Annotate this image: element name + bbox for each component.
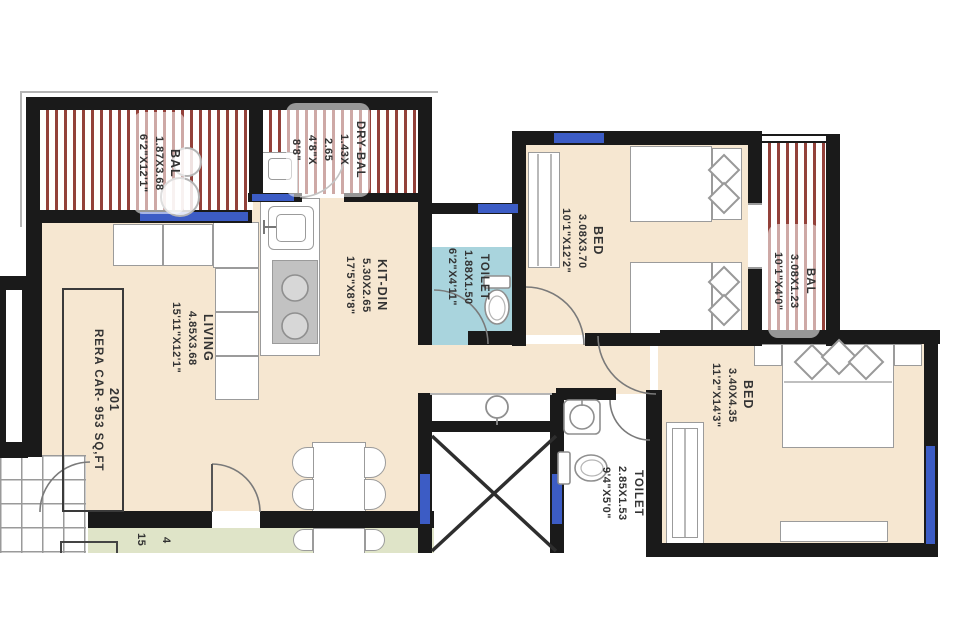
unit-area-box: 201 RERA CAR- 953 SQ,FT xyxy=(62,288,124,512)
room-dim-m: 1.87X3.68 xyxy=(151,114,167,212)
lift-lobby-line xyxy=(430,393,552,395)
room-name: TOILET xyxy=(476,216,492,338)
balcony-rail xyxy=(760,134,828,143)
room-dim-m: 2.85X1.53 xyxy=(614,438,630,548)
unit-number: 201 xyxy=(106,290,122,510)
room-dim-m: 1.43X xyxy=(336,105,352,195)
wall xyxy=(648,543,938,557)
outline xyxy=(20,91,438,93)
adjacent-area-box xyxy=(60,541,118,553)
wall xyxy=(550,393,564,553)
window xyxy=(926,446,935,544)
unit-area: RERA CAR- 953 SQ,FT xyxy=(90,290,106,510)
room-label-bed-top: BED 3.08X3.70 10'1"X12'2" xyxy=(558,182,606,300)
pillow-icon xyxy=(712,148,742,220)
wall xyxy=(26,210,42,457)
window xyxy=(478,204,518,213)
room-name: LIVING xyxy=(200,282,216,394)
room-name: BAL xyxy=(802,226,818,336)
adjacent-table xyxy=(313,528,365,553)
wall xyxy=(249,97,263,201)
lift-lobby-symbol xyxy=(486,396,508,418)
room-dim-m: 2.65 xyxy=(320,105,336,195)
adjacent-unit-label-fragment: 15 xyxy=(133,526,149,553)
wall xyxy=(260,511,434,528)
room-label-dry-balcony: DRY-BAL 1.43X 2.65 4'8"X 8'8" xyxy=(286,103,370,197)
wall xyxy=(556,388,616,400)
room-label-bed-master: BED 3.40X4.35 11'2"X14'3" xyxy=(708,345,756,445)
passage-floor xyxy=(420,344,650,394)
window xyxy=(252,194,294,201)
room-name: BED xyxy=(590,182,606,300)
window xyxy=(552,474,562,524)
lift-shaft xyxy=(432,436,556,551)
room-dim-m: 3.08X3.70 xyxy=(574,182,590,300)
room-dim-ft: 15'11"X12'1" xyxy=(168,282,184,394)
room-name: DRY-BAL xyxy=(352,105,368,195)
room-dim-m: 3.08X1.23 xyxy=(786,226,802,336)
wall xyxy=(418,393,432,553)
room-dim-m: 3.40X4.35 xyxy=(724,345,740,445)
room-name: BED xyxy=(740,345,756,445)
room-dim-m: 4.85X3.68 xyxy=(184,282,200,394)
dining-table xyxy=(312,442,366,514)
sofa-seat xyxy=(215,268,259,312)
room-dim-m: 5.30X2.65 xyxy=(358,226,374,344)
wall xyxy=(512,131,526,346)
sofa-seat xyxy=(215,356,259,400)
wardrobe-inner xyxy=(672,428,698,538)
window xyxy=(554,133,604,143)
window xyxy=(420,474,430,524)
room-label-living: LIVING 4.85X3.68 15'11"X12'1" xyxy=(168,282,216,394)
dresser xyxy=(780,521,888,542)
room-dim-ft: 8'8" xyxy=(288,105,304,195)
bed xyxy=(630,262,712,334)
chair-icon xyxy=(293,529,313,551)
room-label-toilet-master: TOILET 2.85X1.53 9'4"X5'0" xyxy=(598,438,646,548)
bed xyxy=(782,344,894,448)
wall xyxy=(418,97,432,201)
room-dim-ft: 10'1"X4'0" xyxy=(770,226,786,336)
wall xyxy=(646,390,662,557)
room-label-toilet-common: TOILET 1.88X1.50 6'2"X4'11" xyxy=(444,216,492,338)
room-dim-ft: 11'2"X14'3" xyxy=(708,345,724,445)
sofa-corner xyxy=(213,222,259,268)
lift-band xyxy=(424,421,558,432)
nightstand xyxy=(754,344,782,366)
room-label-balcony-right: BAL 3.08X1.23 10'1"X4'0" xyxy=(768,224,820,338)
wall xyxy=(418,198,432,345)
wall xyxy=(26,97,432,110)
sofa-seat xyxy=(215,312,259,356)
kitchen-sink-basin xyxy=(276,214,306,242)
room-dim-ft: 9'4"X5'0" xyxy=(598,438,614,548)
floor-plan: BAL 1.87X3.68 6'2"X12'1" DRY-BAL 1.43X 2… xyxy=(0,0,957,625)
bed xyxy=(630,146,712,222)
room-dim-ft: 6'2"X4'11" xyxy=(444,216,460,338)
room-dim-ft: 17'5"X8'8" xyxy=(342,226,358,344)
room-label-kitchen-dining: KIT-DIN 5.30X2.65 17'5"X8'8" xyxy=(342,226,390,344)
outline xyxy=(20,91,22,227)
balcony-opening xyxy=(748,203,762,269)
room-name: KIT-DIN xyxy=(374,226,390,344)
room-name: BAL xyxy=(167,114,183,212)
room-label-balcony-left: BAL 1.87X3.68 6'2"X12'1" xyxy=(133,112,185,214)
wall xyxy=(26,97,40,223)
wall xyxy=(826,134,840,346)
wardrobe xyxy=(528,152,560,268)
adjacent-unit-label-fragment: 4 xyxy=(158,527,174,553)
lift-shaft xyxy=(432,436,556,551)
sofa-seat xyxy=(113,224,163,266)
nightstand xyxy=(894,344,922,366)
wall xyxy=(512,131,762,145)
pillow-icon xyxy=(712,262,742,334)
stove-icon xyxy=(272,260,318,344)
room-name: TOILET xyxy=(630,438,646,548)
room-dim-m: 1.88X1.50 xyxy=(460,216,476,338)
sofa-seat xyxy=(163,224,213,266)
room-dim-ft: 6'2"X12'1" xyxy=(135,114,151,212)
room-dim-ft: 4'8"X xyxy=(304,105,320,195)
duct-window xyxy=(6,290,22,442)
room-dim-ft: 10'1"X12'2" xyxy=(558,182,574,300)
wall xyxy=(88,511,212,528)
